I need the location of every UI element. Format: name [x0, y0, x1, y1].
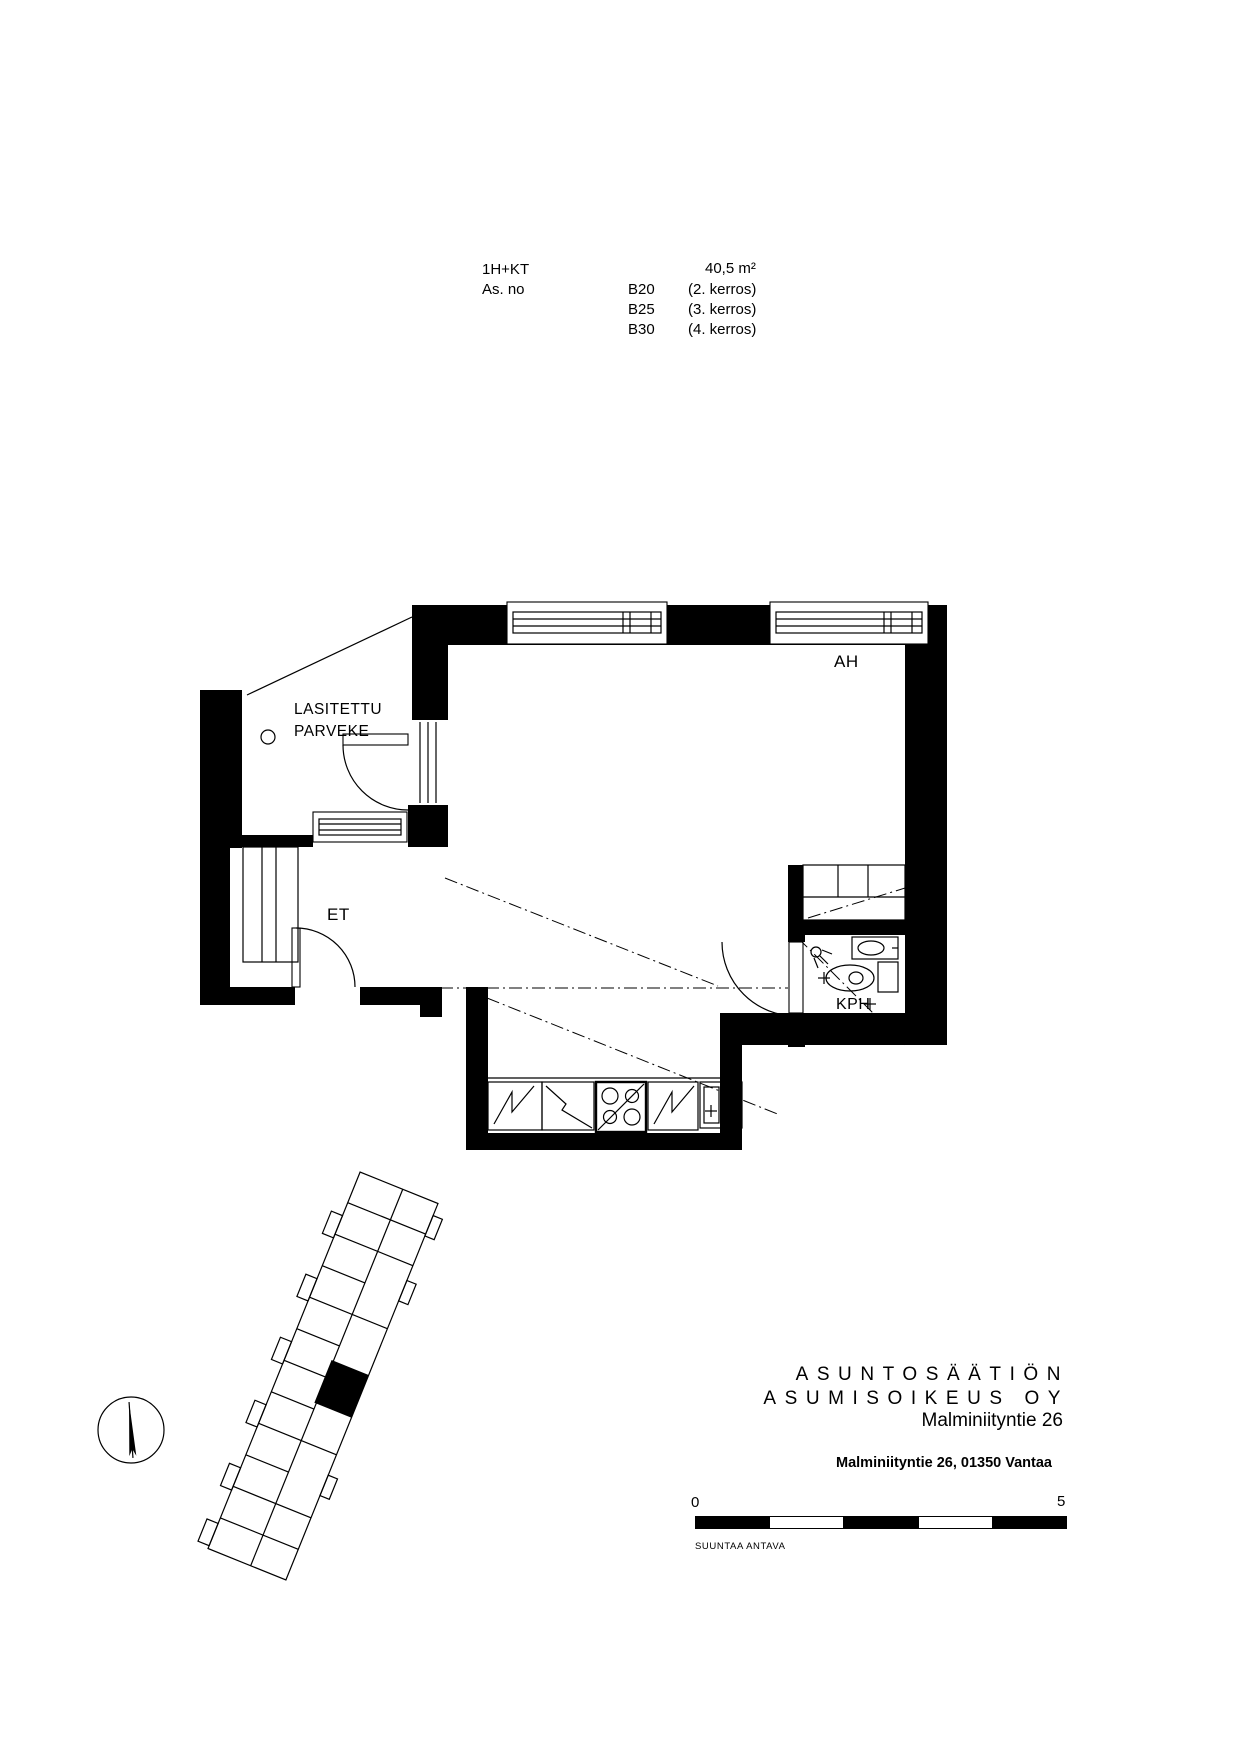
balcony-label-line2: PARVEKE: [294, 721, 382, 743]
floor-plan-sheet: 1H+KT 40,5 m² As. no B20 (2. kerros) B25…: [0, 0, 1241, 1754]
room-label-balcony: LASITETTU PARVEKE: [294, 699, 382, 743]
shower-symbol: [811, 947, 832, 968]
room-label-kph: KPH: [836, 996, 870, 1014]
scale-bar-segment: [993, 1517, 1066, 1528]
scale-start-label: 0: [691, 1494, 699, 1511]
wardrobe: [243, 847, 298, 962]
scale-end-label: 5: [1057, 1493, 1065, 1510]
company-name-line1: ASUNTOSÄÄTIÖN: [796, 1364, 1069, 1386]
compass-icon: [98, 1397, 164, 1463]
balcony-label-line1: LASITETTU: [294, 699, 382, 721]
room-label-ah: AH: [834, 652, 859, 672]
kitchen: [488, 1078, 742, 1132]
company-name-line2: ASUMISOIKEUS OY: [763, 1388, 1069, 1410]
entrance-door: [292, 928, 355, 987]
room-label-et: ET: [327, 905, 350, 925]
company-address: Malminiityntie 26, 01350 Vantaa: [836, 1455, 1052, 1471]
scale-bar-segment: [769, 1517, 844, 1528]
walls: [200, 605, 947, 1150]
scale-bar: [695, 1516, 1067, 1529]
balcony-post: [261, 730, 275, 744]
window-top-left: [507, 602, 667, 644]
bathroom-door: [722, 942, 803, 1016]
company-street: Malminiityntie 26: [922, 1410, 1064, 1432]
scale-bar-segment: [918, 1517, 993, 1528]
floor-plan-drawing: [0, 0, 1241, 1754]
sink: [852, 937, 898, 959]
stove: [596, 1082, 646, 1132]
site-plan-unit-marker: [314, 1360, 368, 1418]
site-plan: [197, 1168, 447, 1584]
scale-bar-segment: [696, 1517, 769, 1528]
freezer: [648, 1082, 698, 1130]
fridge: [488, 1082, 542, 1130]
dishwasher: [542, 1082, 594, 1130]
scale-note: SUUNTAA ANTAVA: [695, 1541, 786, 1552]
scale-bar-segment: [844, 1517, 917, 1528]
closet: [803, 865, 905, 920]
balcony-door: [343, 734, 408, 810]
window-top-right: [770, 602, 928, 644]
